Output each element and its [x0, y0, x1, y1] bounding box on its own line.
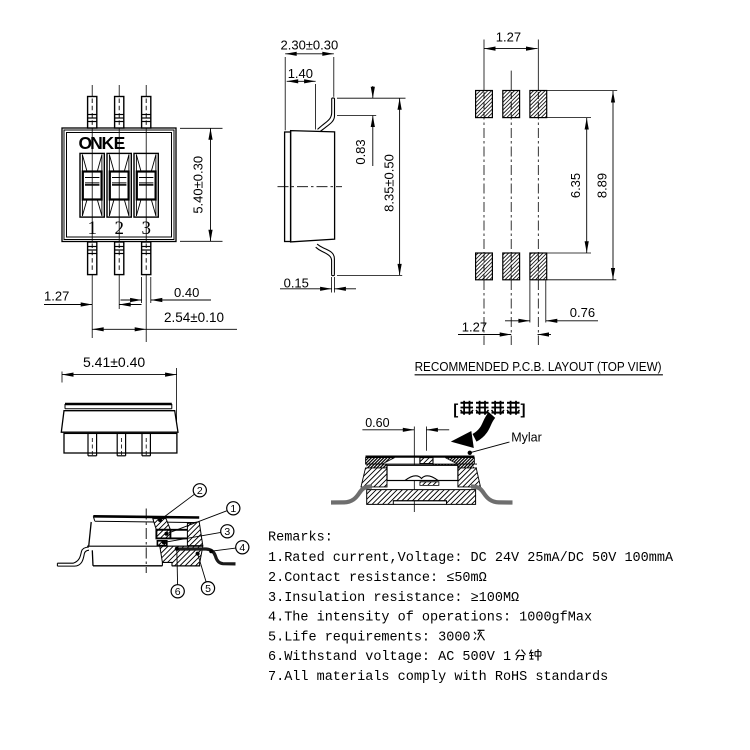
svg-text:ON: ON: [79, 133, 103, 153]
svg-text:6.35: 6.35: [568, 173, 583, 198]
svg-text:0.60: 0.60: [365, 416, 389, 430]
svg-text:3.Insulation resistance: ≥100M: 3.Insulation resistance: ≥100MΩ: [268, 591, 519, 606]
svg-text:[: [: [453, 402, 458, 419]
svg-text:1.Rated current,Voltage: DC 24: 1.Rated current,Voltage: DC 24V 25mA/DC …: [268, 551, 674, 566]
svg-text:5.40±0.30: 5.40±0.30: [191, 156, 206, 214]
svg-text:7.All materials comply with Ro: 7.All materials comply with RoHS standar…: [268, 670, 608, 685]
svg-text:3: 3: [224, 526, 230, 538]
svg-text:1.27: 1.27: [462, 320, 487, 335]
svg-text:RECOMMENDED P.C.B. LAYOUT (TOP: RECOMMENDED P.C.B. LAYOUT (TOP VIEW): [415, 359, 662, 374]
svg-text:]: ]: [521, 402, 526, 419]
svg-text:2.54±0.10: 2.54±0.10: [164, 310, 224, 325]
svg-text:6: 6: [175, 586, 181, 598]
svg-text:0.40: 0.40: [174, 285, 199, 300]
svg-text:0.76: 0.76: [570, 305, 595, 320]
svg-text:3: 3: [141, 218, 151, 239]
svg-text:8.35±0.50: 8.35±0.50: [381, 154, 396, 212]
svg-text:2.30±0.30: 2.30±0.30: [281, 38, 339, 53]
svg-text:5.41±0.40: 5.41±0.40: [83, 354, 145, 370]
svg-text:4: 4: [239, 542, 245, 554]
svg-text:0.15: 0.15: [284, 276, 309, 291]
svg-text:2: 2: [197, 485, 203, 497]
svg-text:1.27: 1.27: [44, 289, 69, 304]
svg-text:5.Life requirements: 3000: 5.Life requirements: 3000: [268, 630, 471, 645]
svg-text:8.89: 8.89: [595, 173, 610, 198]
svg-text:6.Withstand voltage: AC 500V 1: 6.Withstand voltage: AC 500V 1: [268, 650, 511, 665]
svg-text:1: 1: [87, 218, 97, 239]
svg-text:2: 2: [114, 218, 124, 239]
svg-text:5: 5: [205, 583, 211, 595]
svg-text:Remarks:: Remarks:: [268, 531, 333, 546]
svg-text:1: 1: [230, 503, 236, 515]
svg-text:2.Contact resistance: ≤50mΩ: 2.Contact resistance: ≤50mΩ: [268, 571, 487, 586]
svg-text:1.27: 1.27: [496, 29, 521, 44]
svg-text:KE: KE: [102, 133, 125, 153]
svg-text:Mylar: Mylar: [511, 431, 542, 445]
svg-text:1.40: 1.40: [288, 66, 313, 81]
svg-text:4.The intensity of operations:: 4.The intensity of operations: 1000gfMax: [268, 611, 592, 626]
svg-text:0.83: 0.83: [353, 139, 368, 164]
